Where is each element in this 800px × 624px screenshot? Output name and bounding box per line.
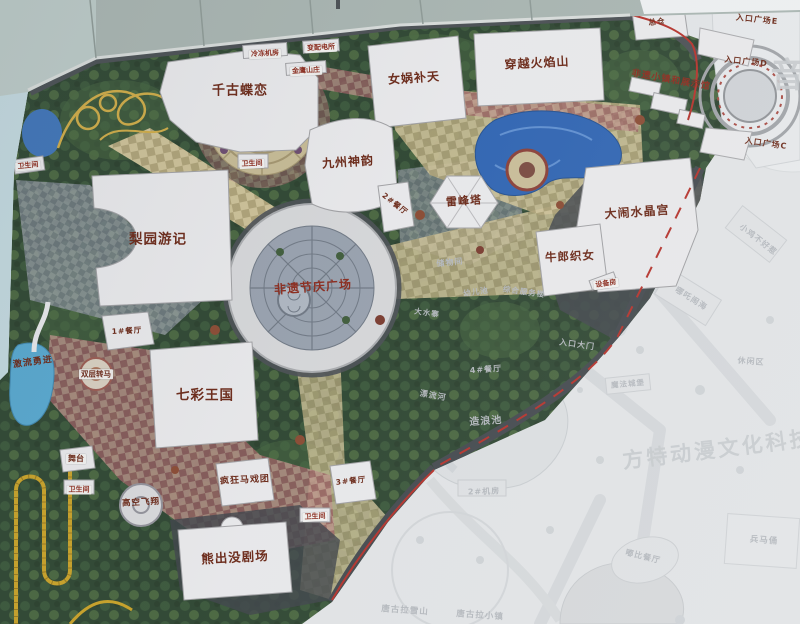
label-fangte-watermark: 方特动漫文化科技	[621, 428, 800, 472]
label-tanggulaxiaozhen: 唐古拉小镇	[456, 610, 504, 622]
label-feiyixiaozhen: 非遗小镇和展示馆	[631, 70, 711, 93]
label-lengdongjifang: 冷冻机房	[249, 49, 281, 60]
label-yin-watermark: 音	[771, 59, 800, 93]
label-danaoshuijinggong: 大闹水晶宫	[604, 204, 670, 221]
label-liyuanyouji: 梨园游记	[129, 233, 187, 247]
label-zonghefuwulou: 综合服务楼	[502, 285, 545, 298]
label-jiliuyongjin: 激流勇进	[13, 356, 54, 370]
label-tanggulaxueshan: 唐古拉雪山	[381, 605, 429, 617]
label-rukouguangchang-c: 入口广场C	[744, 137, 788, 151]
label-jinyingshanzhuang: 金鹰山庄	[290, 66, 322, 77]
label-nezhanaohai: 哪吒闹海	[674, 286, 709, 312]
label-feiyijieqingguangchang: 非遗节庆广场	[274, 278, 353, 295]
label-gaokongfeixiang: 高空飞翔	[122, 498, 160, 508]
label-wutai: 舞台	[66, 454, 86, 464]
label-zaolangchi: 造浪池	[469, 416, 503, 428]
label-leifengta: 雷峰塔	[446, 194, 483, 207]
label-weishengjian-a: 卫生间	[15, 160, 41, 172]
label-dubicanting: 嘟比餐厅	[625, 549, 662, 565]
label-rukoudamen: 入口大门	[559, 339, 596, 352]
label-canting-4: 4#餐厅	[470, 365, 503, 375]
label-niulangzhinv: 牛郎织女	[545, 250, 596, 264]
label-canting-1: 1#餐厅	[112, 326, 143, 335]
label-jiuzhoushenyun: 九州神韵	[322, 154, 375, 170]
label-xiaojibuhaore: 小鸡不好惹	[738, 223, 778, 257]
label-qicaiwangguo: 七彩王国	[176, 389, 234, 403]
label-zongcang: 总仓	[648, 17, 666, 26]
label-piaoliuhe: 漂流河	[419, 390, 447, 403]
label-nuwabutian: 女娲补天	[388, 70, 441, 86]
label-rukouguangchang-e: 入口广场E	[735, 14, 778, 26]
label-xiuxianqu: 休闲区	[737, 357, 764, 367]
label-rukouguangchang-d: 入口广场D	[724, 56, 768, 69]
label-bingmayong: 兵马俑	[749, 536, 778, 546]
theme-park-map-photo: 千古蝶恋女娲补天穿越火焰山九州神韵雷峰塔大闹水晶宫牛郎织女梨园游记七彩王国熊出没…	[0, 0, 800, 624]
label-chuwujian: 储物间	[436, 258, 464, 269]
label-jifang-2: 2#机房	[468, 487, 501, 496]
map-labels-layer: 千古蝶恋女娲补天穿越火焰山九州神韵雷峰塔大闹水晶宫牛郎织女梨园游记七彩王国熊出没…	[0, 0, 800, 624]
label-shuangcengzhuanma: 双层转马	[79, 369, 113, 379]
label-canting-3: 3#餐厅	[335, 476, 366, 487]
label-weishengjian-c: 卫生间	[67, 486, 92, 495]
label-bianpeidiansuo: 变配电所	[305, 43, 337, 54]
label-dashuizhai: 大水寨	[414, 308, 440, 319]
label-fengkuangmaxituan: 疯狂马戏团	[220, 475, 270, 487]
label-mofachengbao: 魔法城堡	[611, 379, 646, 389]
label-canting-2: 2#餐厅	[381, 192, 410, 217]
label-weishengjian-b: 卫生间	[239, 159, 264, 169]
label-youerchi: 幼儿池	[463, 287, 489, 298]
label-xiongchumojuchang: 熊出没剧场	[201, 550, 269, 566]
label-qiangudielian: 千古蝶恋	[212, 85, 268, 98]
label-weishengjian-d: 卫生间	[302, 512, 327, 522]
label-shebeifang: 设备房	[593, 278, 619, 290]
label-chuanyuehuoyanshan: 穿越火焰山	[504, 55, 570, 70]
